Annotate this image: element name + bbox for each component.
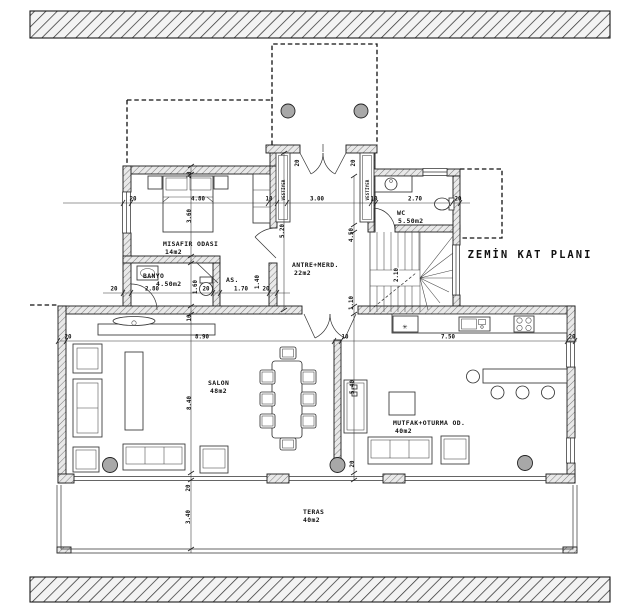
stove xyxy=(514,316,534,332)
dim: 10 xyxy=(187,314,193,321)
sofa-kitchen xyxy=(368,437,432,464)
dim: 3.60 xyxy=(187,209,193,223)
dim: 20 xyxy=(130,197,137,203)
bar-stool xyxy=(542,386,555,399)
wc-sink xyxy=(375,176,412,192)
room-label-wc: WC xyxy=(397,209,406,217)
room-area-salon: 48m2 xyxy=(210,387,227,395)
dim: 20 xyxy=(455,197,462,203)
dim: 20 xyxy=(351,159,357,166)
site-band-top xyxy=(30,11,610,38)
column-icon xyxy=(281,104,295,118)
room-area-mutfak: 40m2 xyxy=(395,427,412,435)
bar-stool xyxy=(516,386,529,399)
dim: 20 xyxy=(263,287,270,293)
entry-double-door xyxy=(300,144,346,174)
dim: 3.00 xyxy=(310,197,324,203)
sofa-bottom xyxy=(123,444,185,470)
room-label-salon: SALON xyxy=(208,379,229,387)
nightstand xyxy=(148,176,162,189)
dim: 20 xyxy=(186,484,192,491)
room-label-antre: ANTRE+MERD. xyxy=(292,261,339,269)
dim: 20 xyxy=(187,171,193,178)
dim: 1.40 xyxy=(255,275,261,289)
porch-columns xyxy=(281,104,368,118)
closet-label: VESTİYER xyxy=(365,179,370,200)
bar-stool xyxy=(491,386,504,399)
side-table xyxy=(73,447,99,472)
island-bar xyxy=(467,369,568,399)
dim: 4.80 xyxy=(191,197,205,203)
entry-closet-right: VESTİYER xyxy=(360,153,374,222)
rug xyxy=(125,352,143,430)
nightstand xyxy=(214,176,228,189)
room-label-mutfak: MUTFAK+OTURMA OD. xyxy=(393,419,465,427)
entry-closet-left: VESTİYER xyxy=(276,153,290,222)
armchair xyxy=(73,344,102,373)
room-area-banyo: 4.50m2 xyxy=(156,280,182,288)
coffee-table xyxy=(389,392,415,415)
window-stairs-east xyxy=(453,245,460,295)
dim: 8.40 xyxy=(187,396,193,410)
wc-door xyxy=(374,208,395,231)
room-label-banyo: BANYO xyxy=(143,272,164,280)
closet-label: VESTİYER xyxy=(281,179,286,200)
kitchen-sink xyxy=(459,317,490,331)
dim: 20 xyxy=(350,460,356,467)
armchair-bottom xyxy=(200,446,228,473)
dim: 20 xyxy=(203,287,210,293)
dim: 5.40 xyxy=(350,380,356,394)
wc-fixtures xyxy=(375,176,454,210)
room-area-misafir: 14m2 xyxy=(165,248,182,256)
plan-title: ZEMİN KAT PLANI xyxy=(468,247,593,261)
dim: 8.90 xyxy=(195,335,209,341)
dim: 10 xyxy=(342,335,349,341)
dim: 20 xyxy=(111,287,118,293)
dim: 3.40 xyxy=(186,510,192,524)
dim: 20 xyxy=(65,335,72,341)
walls xyxy=(57,145,577,553)
site-band-bottom xyxy=(30,577,610,602)
room-area-wc: 5.50m2 xyxy=(398,217,424,225)
tv-console xyxy=(98,317,215,336)
room-label-as: AS. xyxy=(226,276,239,284)
dim: 5.20 xyxy=(280,224,286,238)
dim: 20 xyxy=(295,159,301,166)
window-wc-north xyxy=(423,169,447,176)
dim: 10 xyxy=(266,197,273,203)
kitchen-furniture: ✳ xyxy=(344,314,567,464)
dining-table xyxy=(272,361,302,438)
column-icon xyxy=(518,456,533,471)
window-kitchen-east-2 xyxy=(567,438,575,463)
sliding-glass-south xyxy=(74,477,546,481)
dim: 2.10 xyxy=(394,268,400,282)
bar-chair xyxy=(467,370,480,383)
dim: 2.70 xyxy=(408,197,422,203)
room-area-teras: 40m2 xyxy=(303,516,320,524)
dim: 10 xyxy=(371,197,378,203)
room-label-teras: TERAS xyxy=(303,508,324,516)
staircase xyxy=(370,232,453,312)
fridge: ✳ xyxy=(393,316,418,332)
armchair-kitchen xyxy=(441,436,469,464)
dim: 4.50 xyxy=(349,228,355,242)
window-kitchen-east-1 xyxy=(567,342,575,367)
dim: 20 xyxy=(569,335,576,341)
dim: 1.60 xyxy=(193,280,199,294)
guestroom-door xyxy=(255,228,277,258)
dim: 7.50 xyxy=(441,335,455,341)
column-icon xyxy=(103,458,118,473)
column-icon xyxy=(330,458,345,473)
dim: 1.10 xyxy=(349,296,355,310)
column-icon xyxy=(354,104,368,118)
dim: 1.70 xyxy=(234,287,248,293)
floor-plan-drawing: VESTİYER VESTİYER xyxy=(0,0,640,609)
floor-plan-page: VESTİYER VESTİYER xyxy=(0,0,640,609)
sofa-left xyxy=(73,379,102,437)
room-label-misafir: MISAFIR ODASI xyxy=(163,240,218,248)
room-area-antre: 22m2 xyxy=(294,269,311,277)
fridge-snowflake-icon: ✳ xyxy=(403,322,408,331)
